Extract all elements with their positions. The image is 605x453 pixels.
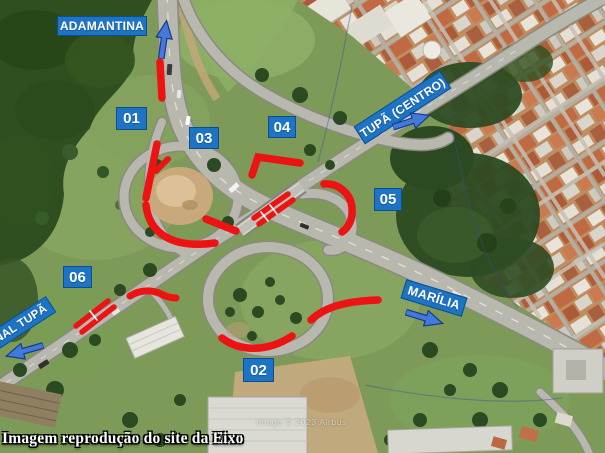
point-marker-03: 03 xyxy=(189,127,219,149)
point-marker-05: 05 xyxy=(374,188,402,211)
point-marker-02: 02 xyxy=(243,358,274,382)
imagery-watermark: Image © 2023 Airbus xyxy=(256,417,347,427)
annotated-satellite-map: ADAMANTINA TUPÃ (CENTRO) MARÍLIA NAL TUP… xyxy=(0,0,605,453)
destination-label-adamantina: ADAMANTINA xyxy=(57,16,147,36)
image-caption: Imagem reprodução do site da Eixo xyxy=(2,430,244,448)
satellite-photo xyxy=(0,0,605,453)
point-marker-04: 04 xyxy=(268,116,296,138)
closure-mark-north xyxy=(160,62,162,98)
point-marker-01: 01 xyxy=(116,107,147,130)
point-marker-06: 06 xyxy=(63,266,92,288)
